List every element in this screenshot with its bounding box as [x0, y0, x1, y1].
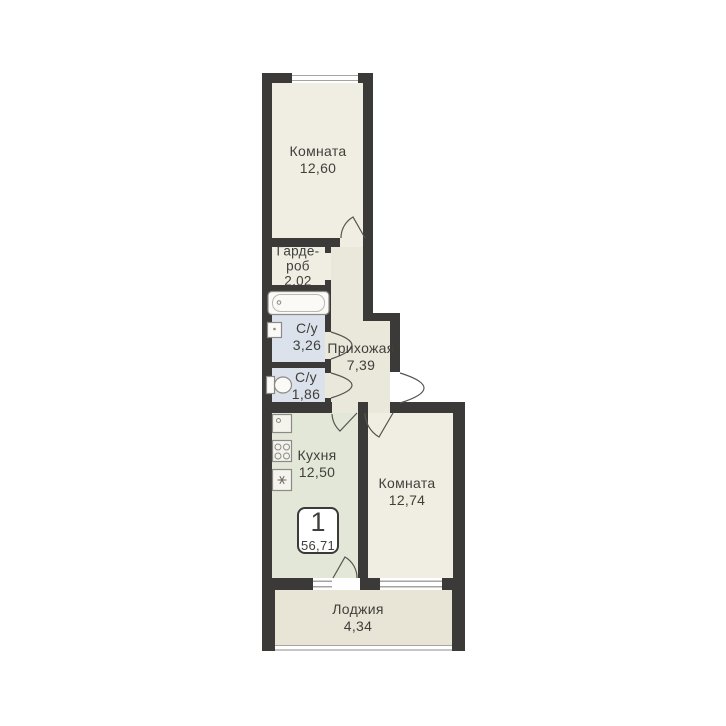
unit-total-area: 56,71 [301, 539, 335, 552]
wall-segment [262, 73, 292, 83]
wall-segment [360, 578, 380, 590]
wall-segment [325, 247, 331, 253]
room-top-name: Комната [290, 143, 347, 160]
wall-segment [363, 83, 373, 316]
opening-loggia-door [332, 578, 360, 590]
wall-segment [442, 578, 465, 590]
room-bottom-label: Комната 12,74 [379, 475, 436, 509]
opening-entrance-door [390, 372, 400, 402]
wall-segment [452, 590, 465, 651]
floorplan-canvas: Комната 12,60 Гарде- роб 2,02 С/у 3,26 С… [0, 0, 726, 726]
wall-segment [325, 291, 331, 332]
wardrobe-name-line2: роб [277, 259, 320, 274]
room-bottom-area: 12,74 [379, 492, 436, 509]
doorway-wardrobe [325, 253, 331, 280]
hallway-area: 7,39 [327, 357, 394, 374]
door-arc-entrance [400, 373, 424, 403]
wardrobe-label: Гарде- роб 2,02 [277, 244, 320, 289]
hallway-floor-upper [331, 247, 363, 321]
wall-segment [363, 313, 400, 321]
doorway-room-bottom [365, 402, 390, 413]
bath-small-area: 1,86 [292, 386, 320, 403]
loggia-area: 4,34 [332, 618, 383, 635]
kitchen-name: Кухня [298, 447, 337, 464]
bath-large-label: С/у 3,26 [293, 320, 321, 354]
wall-segment [358, 73, 373, 83]
bath-large-name: С/у [293, 320, 321, 337]
wall-segment [365, 238, 373, 247]
wall-segment [262, 83, 272, 590]
window-kitchen [313, 578, 332, 590]
wardrobe-area: 2,02 [277, 274, 320, 289]
bath-large-area: 3,26 [293, 337, 321, 354]
wall-segment [262, 402, 332, 413]
doorway-bath-small [325, 373, 331, 398]
unit-rooms-count: 1 [310, 509, 325, 536]
doorway-room-top [340, 238, 365, 247]
window-room-top [292, 73, 358, 83]
wall-segment [262, 578, 313, 590]
loggia-label: Лоджия 4,34 [332, 601, 383, 635]
hallway-label: Прихожая 7,39 [327, 340, 394, 374]
wall-segment [358, 402, 368, 413]
wall-segment [262, 590, 275, 651]
window-room-bottom [380, 578, 442, 590]
kitchen-area: 12,50 [298, 464, 337, 481]
room-top-area: 12,60 [290, 160, 347, 177]
wardrobe-name-line1: Гарде- [277, 244, 320, 259]
kitchen-label: Кухня 12,50 [298, 447, 337, 481]
wall-segment [390, 402, 465, 413]
bath-small-label: С/у 1,86 [292, 369, 320, 403]
wall-segment [358, 413, 368, 578]
hallway-name: Прихожая [327, 340, 394, 357]
wall-segment [262, 362, 331, 368]
wall-segment [453, 413, 465, 590]
room-top-label: Комната 12,60 [290, 143, 347, 177]
loggia-name: Лоджия [332, 601, 383, 618]
unit-badge: 1 56,71 [297, 507, 339, 554]
loggia-glazing [275, 645, 452, 651]
bath-small-name: С/у [292, 369, 320, 386]
room-bottom-name: Комната [379, 475, 436, 492]
doorway-kitchen [332, 402, 358, 413]
